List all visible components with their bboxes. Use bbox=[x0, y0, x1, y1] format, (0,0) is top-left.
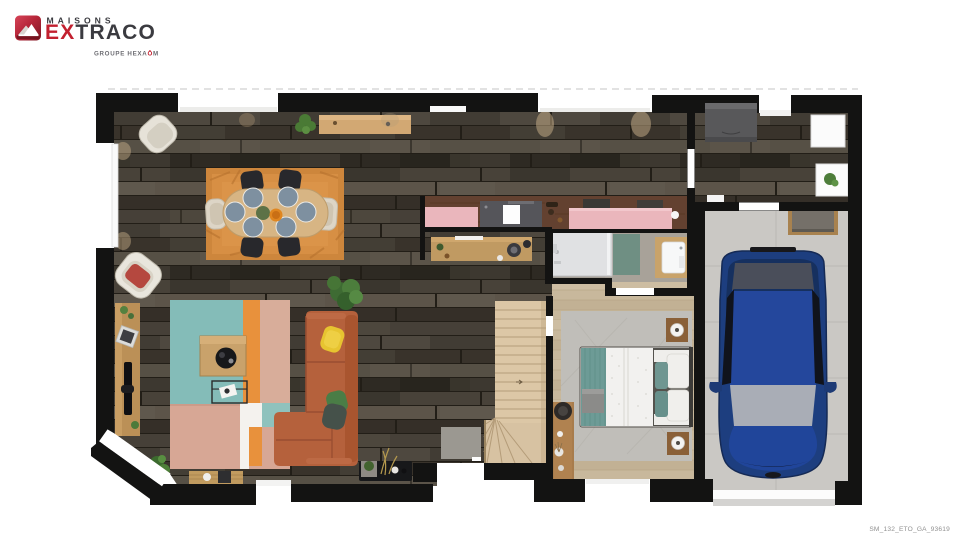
svg-text:GROUPE HEXAŌM: GROUPE HEXAŌM bbox=[94, 51, 159, 58]
svg-text:EXTRACO: EXTRACO bbox=[45, 21, 156, 44]
svg-text:SM_132_ETO_GA_93619: SM_132_ETO_GA_93619 bbox=[869, 526, 950, 533]
